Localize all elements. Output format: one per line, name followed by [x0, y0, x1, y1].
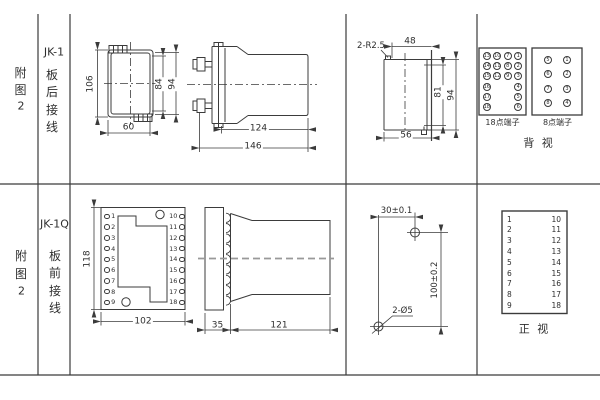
fig1-wiring-char: 后 — [46, 86, 58, 98]
table-number: 10 — [535, 215, 561, 224]
dim-label-94b: 94 — [447, 89, 456, 100]
fig2-wiring-char: 接 — [49, 285, 61, 297]
table-number: 11 — [535, 225, 561, 234]
terminal-circle: 2 — [514, 62, 522, 70]
terminal-circle: 7 — [504, 52, 512, 60]
terminal8-label: 8点端子 — [543, 119, 572, 127]
dim-label-102: 102 — [133, 317, 153, 326]
fig2-wiring-char: 板 — [49, 250, 61, 262]
rear-view-label: 背 视 — [523, 137, 555, 148]
terminal-number: 13 — [169, 245, 177, 253]
front-terminal-row: 16 — [167, 277, 185, 285]
fig2-row-label-char: 2 — [18, 285, 25, 296]
terminal-circle: 3 — [514, 72, 522, 80]
terminal-number: 9 — [111, 298, 115, 306]
front-terminal-row: 1 — [104, 212, 115, 220]
terminal-number: 17 — [169, 288, 177, 296]
dim-label-146: 146 — [243, 143, 263, 152]
hole-note-label: 2-Ø5 — [392, 307, 413, 316]
terminal-empty-cell — [493, 83, 501, 91]
terminal-circle: 5 — [544, 56, 552, 64]
terminal-number: 8 — [111, 288, 115, 296]
table-number: 16 — [535, 279, 561, 288]
dim-label-106: 106 — [86, 75, 95, 92]
terminal-empty-cell — [504, 83, 512, 91]
dim-label-56: 56 — [399, 132, 413, 141]
terminal-dot-icon — [179, 267, 185, 273]
terminal-number: 4 — [111, 245, 115, 253]
fig1-row-label-char: 附 — [14, 67, 26, 79]
fig1-wiring-char: 接 — [46, 104, 58, 116]
table-number: 7 — [507, 279, 512, 288]
front-terminal-row: 17 — [167, 288, 185, 296]
terminal-number: 16 — [169, 277, 177, 285]
table-number: 12 — [535, 236, 561, 245]
terminal-circle: 9 — [504, 72, 512, 80]
front-terminal-row: 3 — [104, 234, 115, 242]
dim-label-118: 118 — [83, 250, 92, 267]
side-view-drawing-jk1 — [187, 43, 317, 153]
terminal-circle: 18 — [483, 103, 491, 111]
table-number: 15 — [535, 269, 561, 278]
terminal-circle: 11 — [493, 62, 501, 70]
front-terminal-row: 5 — [104, 255, 115, 263]
dim-label-60: 60 — [123, 124, 134, 133]
dim-label-30: 30±0.1 — [381, 207, 412, 216]
dim-label-100: 100±0.2 — [430, 261, 439, 298]
terminal-dot-icon — [104, 224, 110, 230]
terminal-empty-cell — [493, 103, 501, 111]
terminal-circle: 1 — [514, 52, 522, 60]
terminal-circle: 12 — [493, 72, 501, 80]
terminal-number: 3 — [111, 234, 115, 242]
front-terminal-row: 8 — [104, 288, 115, 296]
dim-label-35: 35 — [212, 322, 223, 331]
front-terminal-row: 4 — [104, 245, 115, 253]
terminal-circle: 4 — [514, 83, 522, 91]
terminal-circle: 6 — [514, 103, 522, 111]
fig2-wiring-char: 前 — [49, 267, 61, 279]
terminal18-label: 18点端子 — [485, 119, 519, 127]
fig2-row-label-char: 附 — [15, 250, 27, 262]
fig1-row-label-char: 图 — [14, 84, 26, 96]
terminal-number: 2 — [111, 223, 115, 231]
terminal-dot-icon — [179, 214, 185, 220]
terminal-dot-icon — [179, 278, 185, 284]
terminal-number: 6 — [111, 266, 115, 274]
terminal-circle: 13 — [483, 52, 491, 60]
terminal-dot-icon — [179, 224, 185, 230]
terminal-circle: 2 — [563, 70, 571, 78]
terminal-dot-icon — [104, 235, 110, 241]
front-view-label: 正 视 — [519, 323, 551, 334]
terminal-circle: 15 — [483, 72, 491, 80]
terminal-circle: 14 — [483, 62, 491, 70]
terminal-dot-icon — [104, 267, 110, 273]
terminal-number: 11 — [169, 223, 177, 231]
terminal-number: 12 — [169, 234, 177, 242]
terminal-number: 7 — [111, 277, 115, 285]
dim-label-121: 121 — [270, 322, 287, 331]
fig1-model-label: JK-1 — [44, 46, 64, 57]
technical-drawing-sheet: 附 图 2 JK-1 板 后 接 线 106 84 94 60 124 146 … — [0, 0, 600, 400]
terminal-empty-cell — [504, 93, 512, 101]
dim-label-94: 94 — [168, 76, 177, 90]
terminal-circle: 7 — [544, 85, 552, 93]
terminal-dot-icon — [179, 289, 185, 295]
terminal-circle: 1 — [563, 56, 571, 64]
front-terminal-row: 9 — [104, 298, 115, 306]
table-number: 2 — [507, 225, 512, 234]
terminal-dot-icon — [104, 278, 110, 284]
front-terminal-row: 11 — [167, 223, 185, 231]
rear-view-drawing — [95, 42, 179, 136]
terminal-dot-icon — [104, 214, 110, 220]
dim-label-81: 81 — [435, 85, 444, 99]
front-terminal-row: 10 — [167, 212, 185, 220]
front-terminal-row: 2 — [104, 223, 115, 231]
terminal-number: 5 — [111, 255, 115, 263]
terminal-dot-icon — [104, 289, 110, 295]
front-terminal-row: 13 — [167, 245, 185, 253]
table-number: 9 — [507, 301, 512, 310]
table-number: 13 — [535, 247, 561, 256]
terminal-dot-icon — [179, 300, 185, 306]
table-number: 4 — [507, 247, 512, 256]
fig1-wiring-char: 线 — [46, 121, 58, 133]
front-terminal-row: 18 — [167, 298, 185, 306]
fig1-wiring-char: 板 — [46, 69, 58, 81]
terminal-circle: 5 — [514, 93, 522, 101]
fig1-row-label-char: 2 — [18, 101, 25, 112]
table-number: 18 — [535, 301, 561, 310]
front-terminal-row: 12 — [167, 234, 185, 242]
terminal-dot-icon — [179, 246, 185, 252]
terminal-circle: 17 — [483, 93, 491, 101]
front-terminal-row: 7 — [104, 277, 115, 285]
table-number: 6 — [507, 269, 512, 278]
terminal-dot-icon — [179, 257, 185, 263]
terminal-number: 1 — [111, 212, 115, 220]
terminal-number: 14 — [169, 255, 177, 263]
fig2-model-label: JK-1Q — [40, 219, 69, 230]
fig2-wiring-char: 线 — [49, 302, 61, 314]
table-number: 5 — [507, 258, 512, 267]
terminal-empty-cell — [493, 93, 501, 101]
front-terminal-row: 15 — [167, 266, 185, 274]
dim-label-48: 48 — [404, 38, 415, 47]
terminal-circle: 8 — [544, 99, 552, 107]
terminal-circle: 8 — [504, 62, 512, 70]
terminal-empty-cell — [504, 103, 512, 111]
table-number: 17 — [535, 290, 561, 299]
table-number: 3 — [507, 236, 512, 245]
terminal-circle: 4 — [563, 99, 571, 107]
terminal-dot-icon — [104, 300, 110, 306]
terminal-dot-icon — [104, 246, 110, 252]
terminal-dot-icon — [104, 257, 110, 263]
dim-label-124: 124 — [248, 124, 268, 133]
side-view-drawing-jk1q — [198, 208, 334, 335]
table-number: 14 — [535, 258, 561, 267]
front-terminal-row: 6 — [104, 266, 115, 274]
terminal-circle: 10 — [493, 52, 501, 60]
terminal-number: 10 — [169, 212, 177, 220]
terminal-dot-icon — [179, 235, 185, 241]
terminal-number: 15 — [169, 266, 177, 274]
terminal-number: 18 — [169, 298, 177, 306]
terminal-circle: 3 — [563, 85, 571, 93]
table-number: 8 — [507, 290, 512, 299]
table-number: 1 — [507, 215, 512, 224]
cutout-radius-note: 2-R2.5 — [357, 41, 385, 50]
terminal-circle: 16 — [483, 83, 491, 91]
dim-label-84: 84 — [156, 76, 165, 90]
fig2-row-label-char: 图 — [15, 268, 27, 280]
front-terminal-row: 14 — [167, 255, 185, 263]
terminal-circle: 6 — [544, 70, 552, 78]
terminal8-grid: 5 1 6 2 7 3 8 4 — [533, 49, 582, 115]
terminal18-grid: 13 10 7 1 14 11 8 2 15 12 9 3 16 4 17 5 … — [480, 49, 526, 115]
